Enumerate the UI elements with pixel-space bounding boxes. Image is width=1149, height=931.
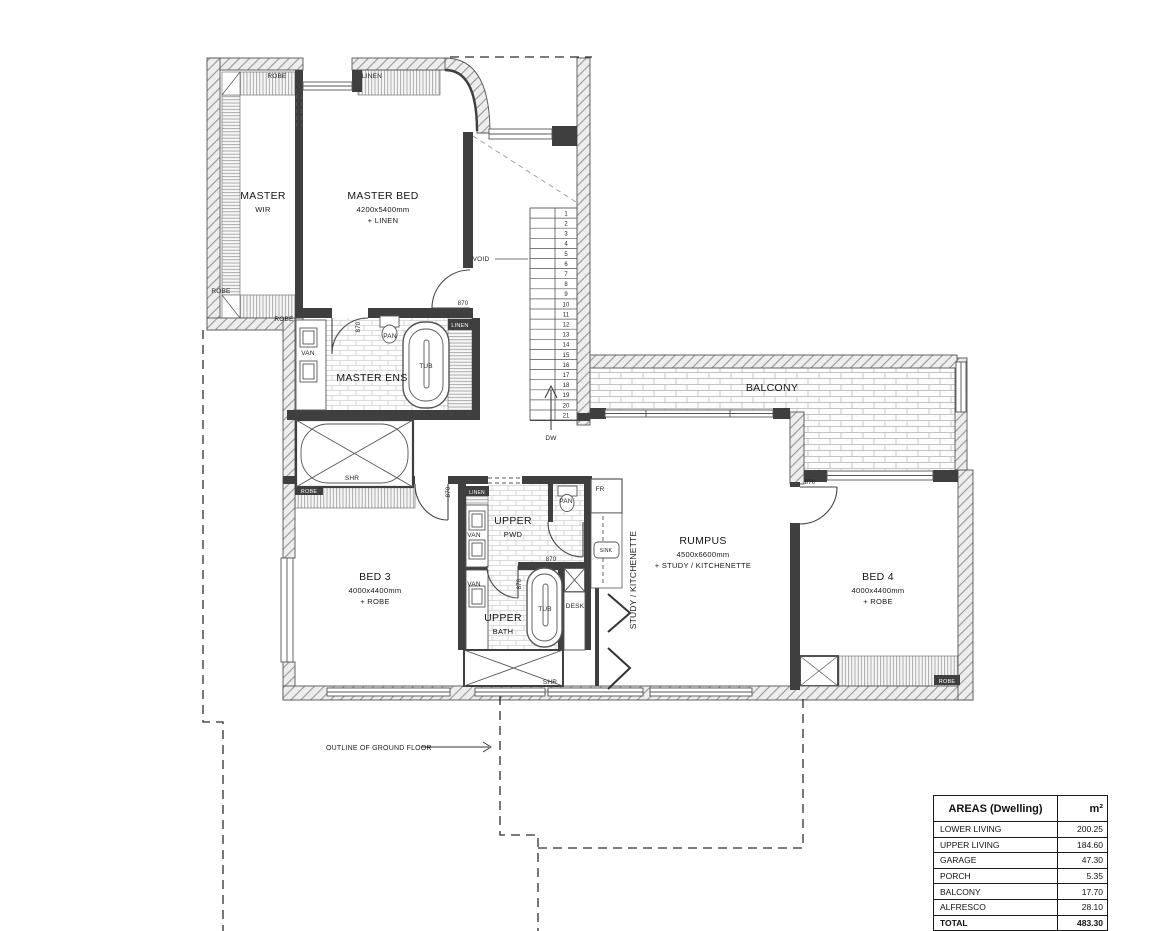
label-outline-of-ground-floor: OUTLINE OF GROUND FLOOR [326, 745, 432, 752]
label-study-kitchenette: STUDY / KITCHENETTE [628, 531, 638, 630]
label-desk: DESK [566, 603, 585, 610]
label-dw: DW [545, 435, 557, 442]
area-label: ALFRESCO [934, 902, 1057, 912]
label-15: 15 [563, 353, 570, 359]
areas-row-balcony: BALCONY17.70 [934, 884, 1107, 900]
label-870: 870 [446, 486, 452, 497]
duct-box [564, 568, 585, 592]
label-13: 13 [563, 333, 570, 339]
areas-row-alfresco: ALFRESCO28.10 [934, 900, 1107, 916]
label-van: VAN [301, 350, 315, 357]
label-870: 870 [517, 578, 523, 589]
label-upper: UPPER [484, 612, 522, 624]
label-van: VAN [467, 532, 481, 539]
label-18: 18 [563, 383, 570, 389]
label-robe: ROBE [939, 679, 956, 685]
area-value: 5.35 [1057, 869, 1107, 884]
label-4000x4400mm: 4000x4400mm [349, 586, 402, 595]
floor-plan-canvas: 123456789101112131415161718192021 [0, 0, 1149, 931]
label-linen: LINEN [451, 323, 468, 329]
area-label: UPPER LIVING [934, 840, 1057, 850]
area-label: BALCONY [934, 887, 1057, 897]
label-linen: LINEN [362, 73, 382, 80]
label-4000x4400mm: 4000x4400mm [852, 586, 905, 595]
label-van: VAN [467, 581, 481, 588]
label-11: 11 [563, 312, 570, 318]
staircase: 123456789101112131415161718192021 [530, 208, 577, 430]
label-870: 870 [458, 301, 469, 307]
areas-table-header: AREAS (Dwelling) m² [934, 796, 1107, 822]
label-4200x5400mm: 4200x5400mm [357, 205, 410, 214]
areas-row-total: TOTAL483.30 [934, 916, 1107, 931]
label-bath: BATH [493, 627, 514, 636]
area-label: LOWER LIVING [934, 824, 1057, 834]
label-19: 19 [563, 393, 570, 399]
areas-table: AREAS (Dwelling) m² LOWER LIVING200.25UP… [933, 795, 1108, 931]
label-4500x6600mm: 4500x6600mm [677, 550, 730, 559]
label-upper: UPPER [494, 515, 532, 527]
label-14: 14 [563, 343, 570, 349]
fridge-space [591, 479, 622, 513]
label-void: VOID [473, 256, 490, 263]
label-robe: ROBE [301, 489, 318, 495]
label-pan: PAN [383, 333, 397, 340]
areas-row-garage: GARAGE47.30 [934, 853, 1107, 869]
label-tub: TUB [419, 363, 433, 370]
areas-table-title: AREAS (Dwelling) [934, 803, 1057, 815]
area-label: PORCH [934, 871, 1057, 881]
label-17: 17 [563, 373, 570, 379]
bed4-door [800, 487, 837, 524]
label-robe: ROBE [211, 288, 231, 295]
kitchenette-chevrons [608, 594, 630, 689]
label-pwd: PWD [504, 530, 523, 539]
area-value: 28.10 [1057, 900, 1107, 915]
areas-row-upper-living: UPPER LIVING184.60 [934, 838, 1107, 854]
label-870: 870 [805, 480, 816, 486]
label-wir: WIR [255, 205, 271, 214]
label-20: 20 [563, 403, 570, 409]
label-fr: FR [595, 486, 604, 493]
label-balcony: BALCONY [746, 382, 798, 394]
label-870: 870 [546, 557, 557, 563]
label-rumpus: RUMPUS [679, 535, 726, 547]
label-robe: ROBE [267, 73, 287, 80]
balcony-tiles-lower [804, 412, 955, 470]
floor-plan-page: { "plan": { "rooms": [ {"name":"master-w… [0, 0, 1149, 931]
label-12: 12 [563, 322, 570, 328]
label-master: MASTER [240, 190, 286, 202]
label-sink: SINK [600, 548, 613, 554]
label-robe: + ROBE [863, 597, 893, 606]
bed3-door [415, 484, 448, 520]
area-value: 184.60 [1057, 838, 1107, 853]
label-21: 21 [563, 413, 570, 419]
label-bed-3: BED 3 [359, 571, 391, 583]
label-pan: PAN [559, 498, 573, 505]
areas-row-porch: PORCH5.35 [934, 869, 1107, 885]
label-bed-4: BED 4 [862, 571, 894, 583]
areas-table-unit: m² [1057, 796, 1107, 821]
area-value: 483.30 [1057, 916, 1107, 931]
label-16: 16 [563, 363, 570, 369]
label-shr: SHR [543, 679, 557, 686]
label-master-ens: MASTER ENS [336, 372, 407, 384]
area-value: 47.30 [1057, 853, 1107, 868]
label-870: 870 [356, 321, 362, 332]
area-label: GARAGE [934, 855, 1057, 865]
area-value: 200.25 [1057, 822, 1107, 837]
label-tub: TUB [538, 606, 552, 613]
label-linen: LINEN [469, 490, 485, 496]
label-10: 10 [563, 302, 570, 308]
area-value: 17.70 [1057, 884, 1107, 899]
label-master-bed: MASTER BED [347, 190, 418, 202]
label-robe: ROBE [274, 316, 294, 323]
area-label: TOTAL [934, 918, 1057, 928]
curved-wall [445, 58, 490, 133]
label-study-kitchenette: + STUDY / KITCHENETTE [655, 561, 751, 570]
label-robe: + ROBE [360, 597, 390, 606]
label-linen: + LINEN [368, 216, 399, 225]
desk-nook [564, 592, 585, 650]
areas-row-lower-living: LOWER LIVING200.25 [934, 822, 1107, 838]
label-shr: SHR [345, 475, 359, 482]
